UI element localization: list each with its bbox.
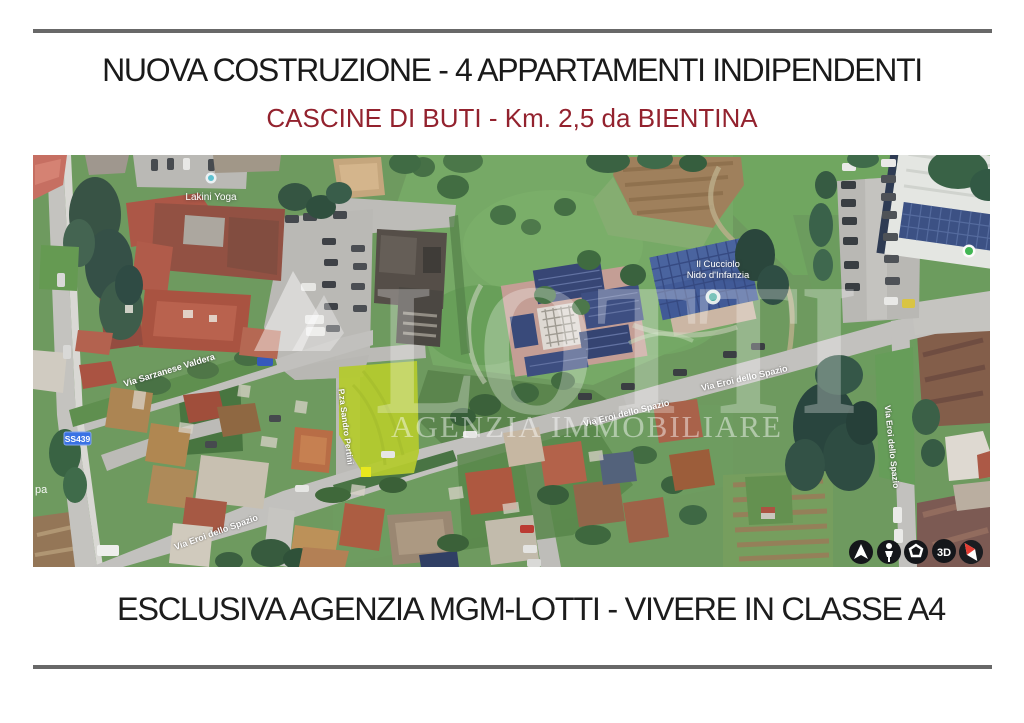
svg-text:AGENZIA IMMOBILIARE: AGENZIA IMMOBILIARE bbox=[391, 409, 783, 444]
svg-text:3D: 3D bbox=[937, 547, 951, 559]
